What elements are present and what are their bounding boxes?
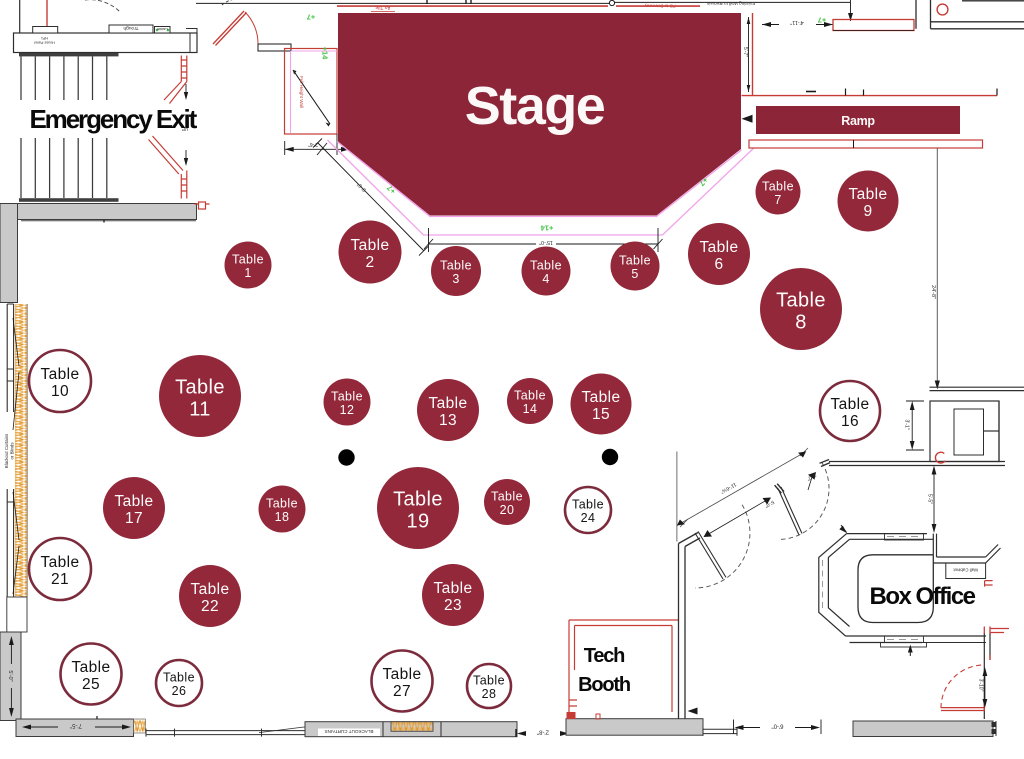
svg-text:Table: Table (175, 377, 225, 399)
svg-text:2'-8": 2'-8" (537, 729, 549, 735)
svg-text:12: 12 (340, 403, 355, 417)
svg-text:Table: Table (331, 390, 363, 404)
svg-text:FB to Driveway: FB to Driveway (644, 3, 676, 8)
svg-text:+7: +7 (307, 13, 316, 22)
svg-text:BLACKOUT CURTAINS: BLACKOUT CURTAINS (324, 729, 373, 734)
svg-text:4: 4 (542, 272, 549, 286)
svg-text:21: 21 (51, 571, 69, 588)
svg-text:24'-8": 24'-8" (930, 285, 936, 299)
svg-text:Emergency Exit: Emergency Exit (29, 104, 197, 134)
svg-text:or Blinds: or Blinds (9, 442, 14, 460)
svg-text:7'-5": 7'-5" (70, 722, 82, 728)
svg-text:4'-11": 4'-11" (790, 19, 803, 25)
svg-text:9: 9 (863, 203, 872, 220)
svg-text:7: 7 (774, 193, 781, 207)
svg-text:15: 15 (592, 406, 610, 423)
svg-text:5'-7": 5'-7" (742, 47, 748, 57)
svg-text:11: 11 (189, 399, 211, 421)
svg-text:Table: Table (699, 239, 738, 256)
svg-text:Table: Table (762, 180, 794, 194)
svg-text:Table: Table (266, 497, 298, 511)
svg-text:5'-5": 5'-5" (927, 494, 933, 504)
svg-text:27: 27 (393, 683, 411, 700)
svg-text:3'-1": 3'-1" (904, 419, 910, 429)
svg-text:+14: +14 (540, 224, 554, 233)
svg-text:6: 6 (714, 256, 723, 273)
svg-text:Booth: Booth (578, 674, 630, 696)
svg-text:15'-0": 15'-0" (539, 239, 553, 245)
svg-text:Ladder: Ladder (156, 27, 168, 31)
svg-text:Tech: Tech (584, 645, 624, 667)
svg-text:Table: Table (848, 186, 887, 203)
svg-text:1: 1 (244, 266, 251, 280)
svg-text:8: 8 (795, 312, 807, 334)
svg-text:23: 23 (444, 597, 462, 614)
svg-text:+14: +14 (321, 47, 330, 61)
svg-text:Wall Cabinet: Wall Cabinet (953, 567, 979, 572)
svg-text:Table: Table (428, 395, 467, 412)
svg-text:Existing Wall to Remain: Existing Wall to Remain (706, 1, 755, 6)
svg-text:As Tile: As Tile (375, 4, 390, 10)
svg-text:Table: Table (572, 498, 604, 512)
svg-text:Table: Table (433, 580, 472, 597)
svg-text:Table: Table (190, 581, 229, 598)
svg-text:Table: Table (114, 493, 153, 510)
svg-text:3'-10": 3'-10" (978, 679, 984, 692)
svg-text:Table: Table (514, 389, 546, 403)
svg-text:3: 3 (452, 272, 459, 286)
svg-text:Table: Table (830, 396, 869, 413)
svg-text:Ramp: Ramp (841, 114, 875, 128)
svg-text:Blackout Curtains: Blackout Curtains (4, 433, 9, 468)
svg-text:5: 5 (631, 267, 638, 281)
svg-text:Table: Table (776, 290, 826, 312)
svg-text:Table: Table (350, 237, 389, 254)
svg-text:Full Height Wall: Full Height Wall (299, 76, 304, 108)
svg-text:Table: Table (619, 254, 651, 268)
svg-text:13: 13 (439, 412, 457, 429)
svg-text:24: 24 (581, 511, 596, 525)
svg-text:Table: Table (40, 366, 79, 383)
svg-text:22: 22 (201, 598, 219, 615)
svg-text:19: 19 (406, 511, 429, 533)
svg-text:Box Office: Box Office (869, 583, 975, 610)
svg-text:Table: Table (163, 671, 195, 685)
svg-text:Table: Table (491, 490, 523, 504)
svg-text:Table: Table (530, 259, 562, 273)
svg-text:Table: Table (382, 666, 421, 683)
svg-text:25: 25 (82, 676, 100, 693)
svg-text:Table: Table (581, 389, 620, 406)
svg-text:10: 10 (51, 383, 69, 400)
svg-text:2: 2 (365, 254, 374, 271)
svg-text:28: 28 (482, 687, 497, 701)
svg-text:Trough: Trough (123, 25, 138, 31)
svg-text:Table: Table (232, 253, 264, 267)
svg-text:14: 14 (523, 402, 538, 416)
svg-text:Table: Table (473, 674, 505, 688)
svg-text:20: 20 (500, 503, 515, 517)
svg-text:16: 16 (841, 413, 859, 430)
svg-text:Stage: Stage (465, 76, 605, 136)
svg-text:5'-0": 5'-0" (7, 670, 13, 681)
svg-text:Table: Table (393, 489, 443, 511)
svg-text:26: 26 (172, 684, 187, 698)
svg-text:Table: Table (71, 659, 110, 676)
svg-text:Table: Table (40, 554, 79, 571)
svg-text:6'-0": 6'-0" (772, 722, 784, 728)
svg-text:Table: Table (440, 259, 472, 273)
svg-text:HP1: HP1 (41, 36, 48, 40)
svg-text:17: 17 (125, 510, 143, 527)
svg-text:18: 18 (275, 510, 290, 524)
